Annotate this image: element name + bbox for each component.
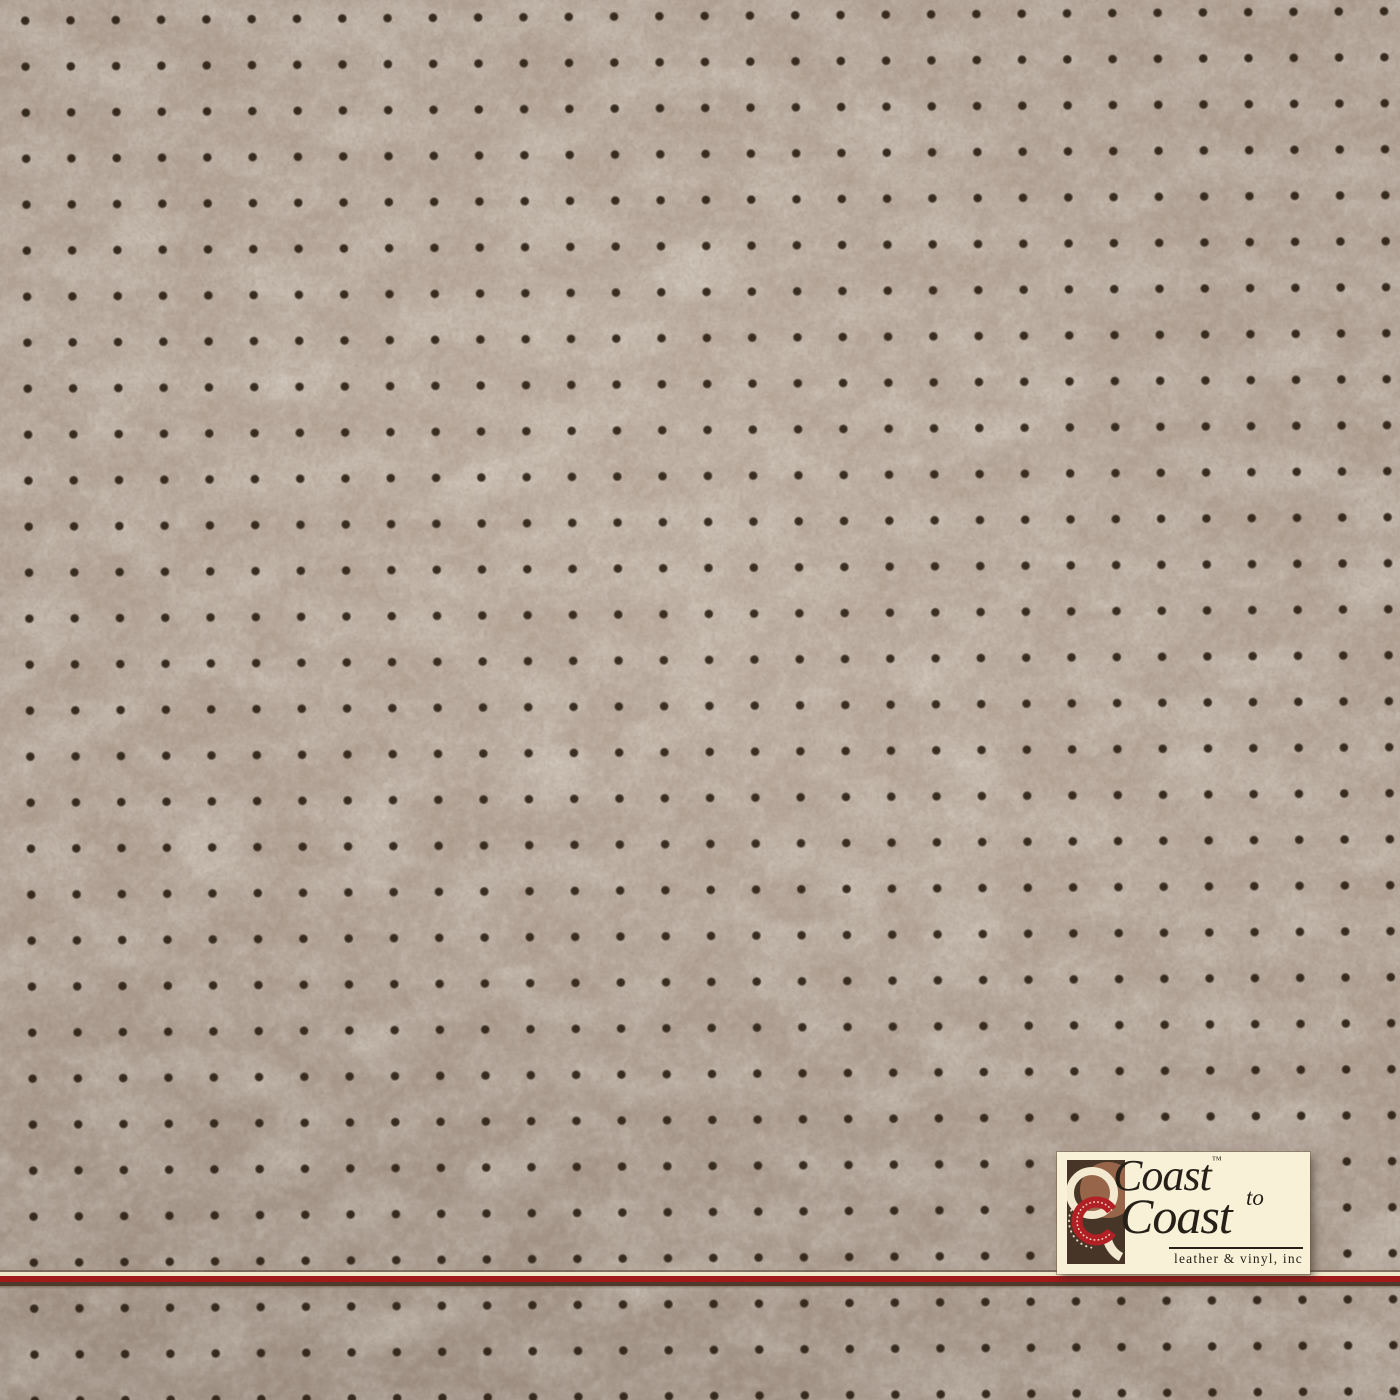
brand-connector-to: to xyxy=(1246,1185,1264,1211)
trademark-symbol: ™ xyxy=(1212,1155,1222,1166)
logo-tagline: leather & vinyl, inc xyxy=(1174,1251,1303,1267)
brand-logo-badge: Coast™ to Coast leather & vinyl, inc xyxy=(1057,1152,1310,1274)
perforated-vinyl-swatch-photo: Coast™ to Coast leather & vinyl, inc xyxy=(0,0,1400,1400)
logo-divider-rule xyxy=(1169,1247,1303,1249)
brand-word-line2: Coast xyxy=(1120,1190,1232,1243)
stripe-fade xyxy=(0,1286,1400,1289)
